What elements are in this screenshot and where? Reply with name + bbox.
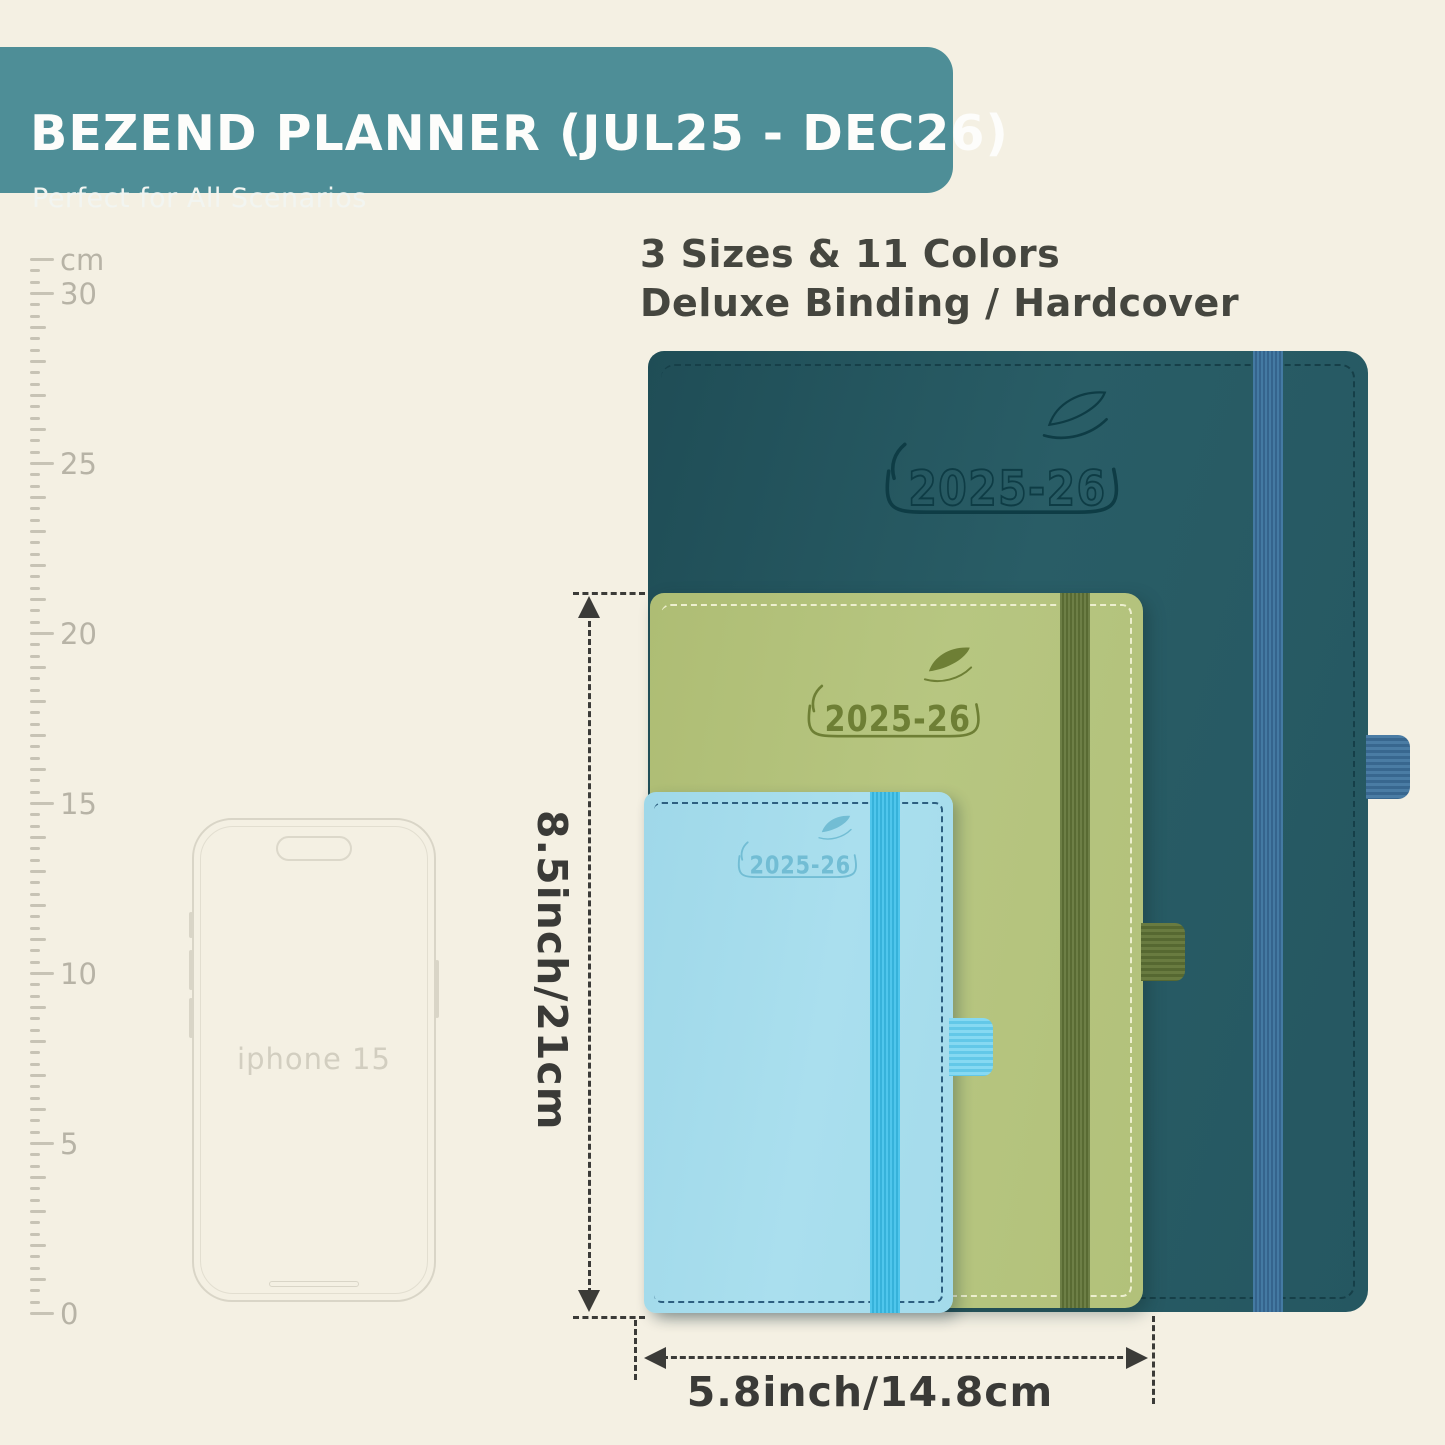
year-logo: 2025-26 bbox=[734, 814, 862, 883]
ruler-tick bbox=[30, 1301, 40, 1304]
ruler-tick bbox=[30, 1176, 46, 1179]
pen-loop bbox=[949, 1018, 993, 1076]
ruler-tick bbox=[30, 711, 40, 714]
elastic-band bbox=[870, 792, 900, 1313]
ruler-tick bbox=[30, 972, 54, 975]
ruler-tick bbox=[30, 1278, 46, 1281]
year-text: 2025-26 bbox=[908, 461, 1106, 517]
ruler-tick bbox=[30, 496, 46, 499]
ruler-tick bbox=[30, 1131, 40, 1134]
ruler-tick bbox=[30, 1153, 40, 1156]
ruler-tick bbox=[30, 1244, 46, 1247]
product-image: BEZEND PLANNER (JUL25 - DEC26) Perfect f… bbox=[0, 0, 1445, 1445]
ruler-tick bbox=[30, 1097, 40, 1100]
ruler-tick bbox=[30, 961, 40, 964]
ruler-label: cm bbox=[60, 243, 130, 277]
height-extension-line-top bbox=[573, 592, 645, 595]
ruler-tick bbox=[30, 1017, 40, 1020]
banner-subtitle: Perfect for All Scenarios bbox=[32, 183, 367, 214]
ruler-tick bbox=[30, 360, 46, 363]
ruler-tick bbox=[30, 281, 40, 284]
feature-line-sizes: 3 Sizes & 11 Colors bbox=[640, 230, 1239, 279]
ruler-tick bbox=[30, 1199, 40, 1202]
ruler-tick bbox=[30, 915, 40, 918]
ruler-tick bbox=[30, 893, 40, 896]
feather-icon bbox=[925, 648, 971, 682]
ruler-tick bbox=[30, 507, 40, 510]
ruler-tick bbox=[30, 802, 54, 805]
ruler-tick bbox=[30, 258, 54, 261]
ruler-tick bbox=[30, 1165, 40, 1168]
ruler-tick bbox=[30, 700, 46, 703]
year-text: 2025-26 bbox=[824, 699, 971, 740]
ruler-tick bbox=[30, 632, 54, 635]
ruler-tick bbox=[30, 1029, 40, 1032]
ruler-tick bbox=[30, 1108, 46, 1111]
feature-text: 3 Sizes & 11 Colors Deluxe Binding / Har… bbox=[640, 230, 1239, 328]
ruler-tick bbox=[30, 519, 40, 522]
ruler-tick bbox=[30, 779, 40, 782]
ruler-tick bbox=[30, 1040, 46, 1043]
ruler-tick bbox=[30, 677, 40, 680]
year-logo: 2025-26 bbox=[802, 645, 987, 744]
ruler-tick bbox=[30, 371, 40, 374]
pen-loop bbox=[1141, 923, 1185, 981]
phone-dynamic-island bbox=[276, 836, 352, 861]
ruler-tick bbox=[30, 791, 40, 794]
banner-title: BEZEND PLANNER (JUL25 - DEC26) bbox=[30, 105, 1009, 162]
ruler-tick bbox=[30, 315, 40, 318]
ruler-tick bbox=[30, 587, 40, 590]
arrow-up-icon bbox=[578, 596, 600, 618]
width-dimension-line bbox=[662, 1356, 1132, 1359]
elastic-band bbox=[1253, 351, 1283, 1312]
ruler-tick bbox=[30, 847, 40, 850]
ruler-tick bbox=[30, 553, 40, 556]
ruler-tick bbox=[30, 530, 46, 533]
ruler-tick bbox=[30, 1267, 40, 1270]
ruler-tick bbox=[30, 621, 40, 624]
ruler-tick bbox=[30, 904, 46, 907]
width-dimension-label: 5.8inch/14.8cm bbox=[655, 1368, 1085, 1416]
ruler-tick bbox=[30, 1233, 40, 1236]
ruler-tick bbox=[30, 428, 46, 431]
ruler-tick bbox=[30, 564, 46, 567]
ruler-label: 30 bbox=[60, 277, 130, 311]
ruler-tick bbox=[30, 598, 46, 601]
ruler-tick bbox=[30, 734, 46, 737]
phone-volume-button bbox=[189, 998, 193, 1038]
year-text: 2025-26 bbox=[750, 850, 851, 879]
ruler-tick bbox=[30, 439, 40, 442]
ruler-tick bbox=[30, 1006, 46, 1009]
ruler-tick bbox=[30, 1210, 46, 1213]
ruler-tick bbox=[30, 417, 40, 420]
ruler-tick bbox=[30, 326, 46, 329]
phone-outline: iphone 15 bbox=[192, 818, 436, 1302]
ruler-tick bbox=[30, 655, 40, 658]
ruler-tick bbox=[30, 1085, 40, 1088]
ruler-tick bbox=[30, 813, 40, 816]
ruler-label: 20 bbox=[60, 617, 130, 651]
ruler-tick bbox=[30, 292, 54, 295]
ruler-tick bbox=[30, 1221, 40, 1224]
ruler-tick bbox=[30, 1119, 40, 1122]
ruler-tick bbox=[30, 768, 46, 771]
ruler-label: 0 bbox=[60, 1297, 130, 1331]
ruler-label: 5 bbox=[60, 1127, 130, 1161]
year-logo: 2025-26 bbox=[878, 389, 1128, 523]
ruler-label: 10 bbox=[60, 957, 130, 991]
ruler-tick bbox=[30, 383, 40, 386]
ruler-tick bbox=[30, 349, 40, 352]
ruler-tick bbox=[30, 881, 40, 884]
ruler-tick bbox=[30, 723, 40, 726]
ruler-label: 15 bbox=[60, 787, 130, 821]
ruler-tick bbox=[30, 983, 40, 986]
ruler-tick bbox=[30, 1289, 40, 1292]
ruler-tick bbox=[30, 995, 40, 998]
ruler-tick bbox=[30, 949, 40, 952]
ruler-tick bbox=[30, 609, 40, 612]
ruler-tick bbox=[30, 485, 40, 488]
ruler: cm302520151050 bbox=[30, 258, 150, 1348]
ruler-tick bbox=[30, 337, 40, 340]
ruler-tick bbox=[30, 689, 40, 692]
elastic-band bbox=[1060, 593, 1090, 1308]
ruler-tick bbox=[30, 1063, 40, 1066]
height-extension-line-bottom bbox=[573, 1316, 645, 1319]
ruler-tick bbox=[30, 870, 46, 873]
ruler-tick bbox=[30, 303, 40, 306]
arrow-right-icon bbox=[1126, 1347, 1148, 1369]
ruler-tick bbox=[30, 451, 40, 454]
ruler-tick bbox=[30, 394, 46, 397]
ruler-label: 25 bbox=[60, 447, 130, 481]
phone-speaker bbox=[269, 1281, 359, 1287]
feather-icon bbox=[819, 816, 851, 839]
ruler-tick bbox=[30, 473, 40, 476]
ruler-tick bbox=[30, 1255, 40, 1258]
feather-icon bbox=[1044, 392, 1106, 437]
ruler-tick bbox=[30, 269, 40, 272]
ruler-tick bbox=[30, 541, 40, 544]
phone-mute-switch bbox=[189, 912, 193, 938]
title-banner: BEZEND PLANNER (JUL25 - DEC26) Perfect f… bbox=[0, 47, 953, 193]
ruler-tick bbox=[30, 1051, 40, 1054]
width-extension-line-right bbox=[1152, 1316, 1155, 1404]
arrow-down-icon bbox=[578, 1290, 600, 1312]
ruler-tick bbox=[30, 405, 40, 408]
ruler-tick bbox=[30, 1187, 40, 1190]
ruler-tick bbox=[30, 825, 40, 828]
ruler-tick bbox=[30, 575, 40, 578]
ruler-tick bbox=[30, 938, 46, 941]
ruler-tick bbox=[30, 927, 40, 930]
ruler-tick bbox=[30, 643, 40, 646]
phone-label: iphone 15 bbox=[194, 1042, 434, 1076]
ruler-tick bbox=[30, 859, 40, 862]
height-dimension-line bbox=[588, 612, 591, 1294]
ruler-tick bbox=[30, 745, 40, 748]
ruler-tick bbox=[30, 836, 46, 839]
height-dimension-label: 8.5inch/21cm bbox=[528, 810, 576, 1110]
ruler-tick bbox=[30, 1074, 46, 1077]
phone-volume-button bbox=[189, 950, 193, 990]
ruler-tick bbox=[30, 462, 54, 465]
phone-power-button bbox=[435, 960, 439, 1018]
feature-line-binding: Deluxe Binding / Hardcover bbox=[640, 279, 1239, 328]
pen-loop bbox=[1366, 735, 1410, 799]
ruler-tick bbox=[30, 666, 46, 669]
width-extension-line-left bbox=[634, 1320, 637, 1380]
arrow-left-icon bbox=[644, 1347, 666, 1369]
planner-small: 2025-26 bbox=[644, 792, 953, 1313]
ruler-tick bbox=[30, 1142, 54, 1145]
ruler-tick bbox=[30, 1312, 54, 1315]
ruler-tick bbox=[30, 757, 40, 760]
